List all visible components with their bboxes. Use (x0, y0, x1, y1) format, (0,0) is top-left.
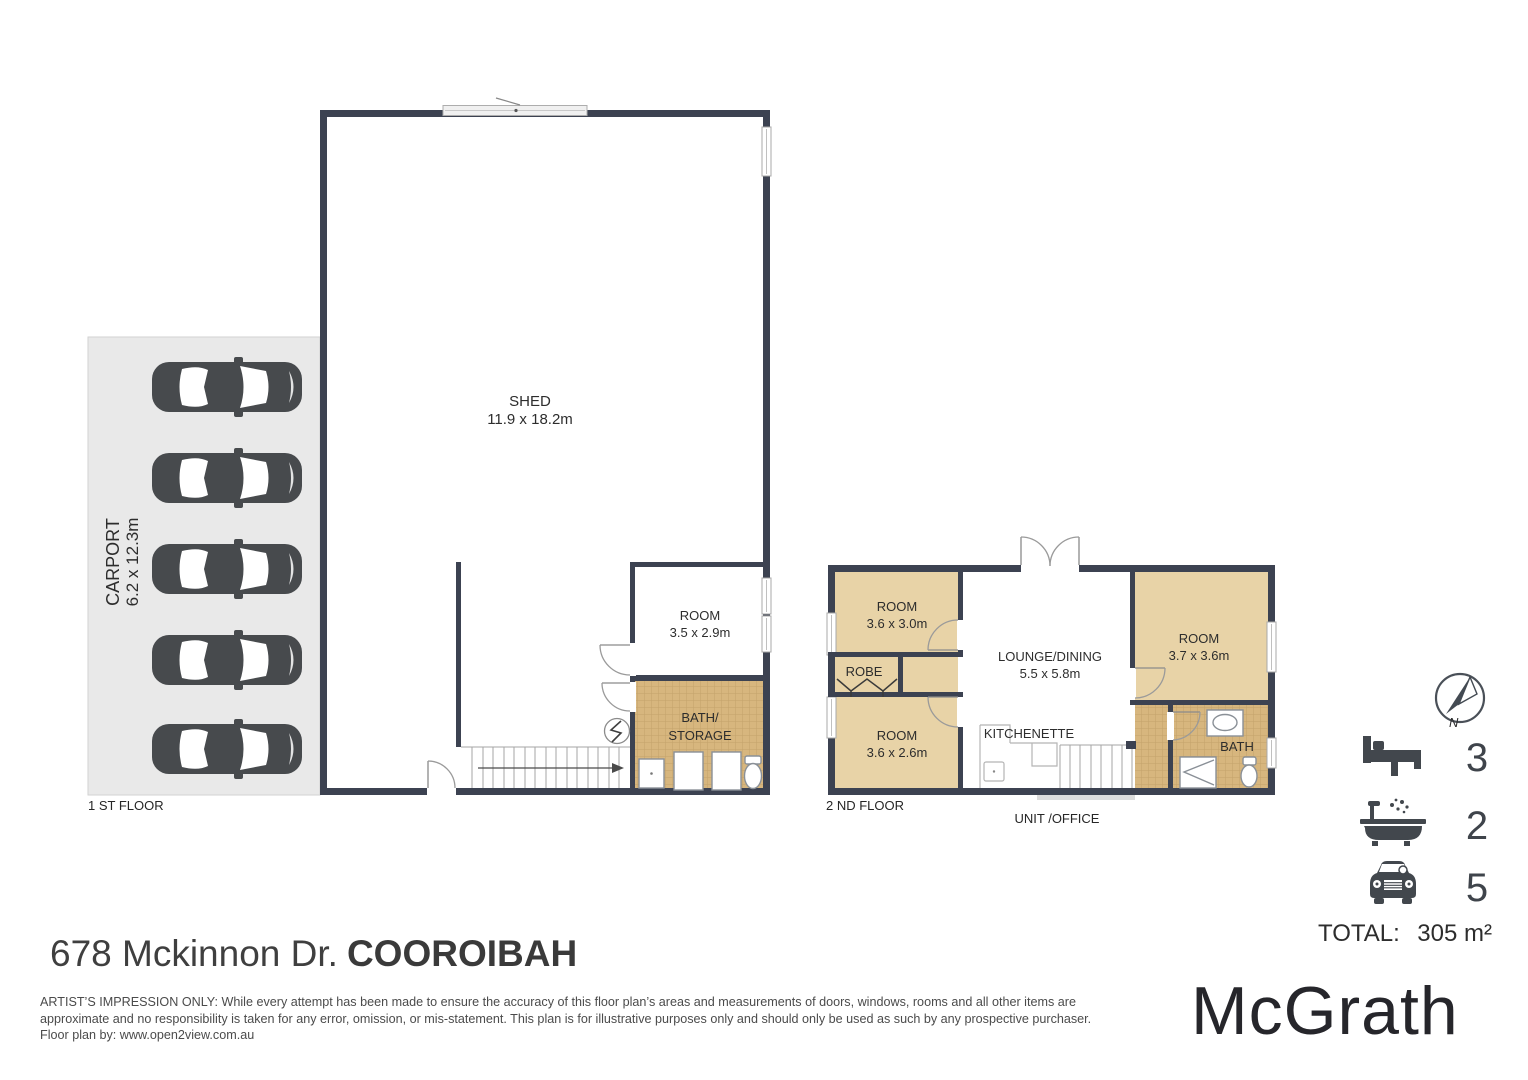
stairs (1060, 741, 1136, 788)
bathroom-count: 2 (1466, 804, 1488, 848)
disclaimer-line: approximate and no responsibility is tak… (40, 1011, 1150, 1028)
second-floor-label: 2 ND FLOOR (826, 798, 904, 813)
room-b-dims: 3.6 x 2.6m (867, 745, 928, 760)
sliding-door (443, 98, 587, 116)
floorplan-canvas: CARPORT 6.2 x 12.3m SHED 11.9 x 18.2m (0, 0, 1528, 1080)
car-space-count: 5 (1466, 866, 1488, 910)
bath-label: BATH (1220, 739, 1254, 754)
total-label: TOTAL: (1318, 920, 1400, 947)
summary-panel: N 3 2 (1318, 674, 1492, 947)
car-top-icon (152, 719, 302, 779)
address-street: 678 Mckinnon Dr. (50, 933, 338, 974)
car-top-icon (152, 357, 302, 417)
bathtub-icon (1360, 799, 1426, 846)
bath-storage-label-2: STORAGE (668, 728, 732, 743)
disclaimer-line: Floor plan by: www.open2view.com.au (40, 1027, 1150, 1044)
hot-water-unit-icon (605, 719, 630, 744)
bath-storage-label-1: BATH/ (681, 710, 719, 725)
room-c-dims: 3.7 x 3.6m (1169, 648, 1230, 663)
double-entry-door (1021, 537, 1079, 566)
mcgrath-logo: McGrath (1191, 972, 1459, 1050)
car-top-icon (152, 539, 302, 599)
car-icon (1370, 861, 1416, 904)
second-floor-plan: ROOM 3.6 x 3.0m ROBE ROOM 3.6 x 2.6m LOU… (826, 537, 1276, 826)
room-b-label: ROOM (877, 728, 917, 743)
shed-room-label: ROOM (680, 608, 720, 623)
lounge-dining-label: LOUNGE/DINING (998, 649, 1102, 664)
room-a-label: ROOM (877, 599, 917, 614)
property-address: 678 Mckinnon Dr.COOROIBAH (50, 933, 577, 975)
first-floor-label: 1 ST FLOOR (88, 798, 164, 813)
room-c-label: ROOM (1179, 631, 1219, 646)
bedroom-count: 3 (1466, 736, 1488, 780)
total-area-value: 305 m² (1417, 920, 1492, 947)
lounge-dining-dims: 5.5 x 5.8m (1020, 666, 1081, 681)
shed-label: SHED (509, 393, 551, 410)
car-top-icon (152, 630, 302, 690)
stairs-direction-arrow (612, 763, 624, 773)
unit-office-label: UNIT /OFFICE (1015, 811, 1100, 826)
carport: CARPORT 6.2 x 12.3m (88, 337, 320, 795)
carport-label: CARPORT (103, 518, 123, 606)
first-floor-plan: CARPORT 6.2 x 12.3m SHED 11.9 x 18.2m (88, 98, 771, 813)
carport-dims: 6.2 x 12.3m (123, 518, 142, 607)
compass-icon: N (1436, 674, 1484, 730)
disclaimer: ARTIST’S IMPRESSION ONLY: While every at… (40, 994, 1150, 1044)
bed-icon (1363, 736, 1421, 776)
shed-room-dims: 3.5 x 2.9m (670, 625, 731, 640)
shed-dims: 11.9 x 18.2m (487, 411, 573, 428)
address-suburb: COOROIBAH (347, 933, 577, 974)
compass-north-label: N (1449, 715, 1459, 730)
disclaimer-line: ARTIST’S IMPRESSION ONLY: While every at… (40, 994, 1150, 1011)
stairs (461, 747, 630, 788)
floorplan-page: CARPORT 6.2 x 12.3m SHED 11.9 x 18.2m (0, 0, 1528, 1080)
kitchenette-label: KITCHENETTE (984, 726, 1075, 741)
room-a-dims: 3.6 x 3.0m (867, 616, 928, 631)
car-top-icon (152, 448, 302, 508)
robe-label: ROBE (846, 664, 883, 679)
